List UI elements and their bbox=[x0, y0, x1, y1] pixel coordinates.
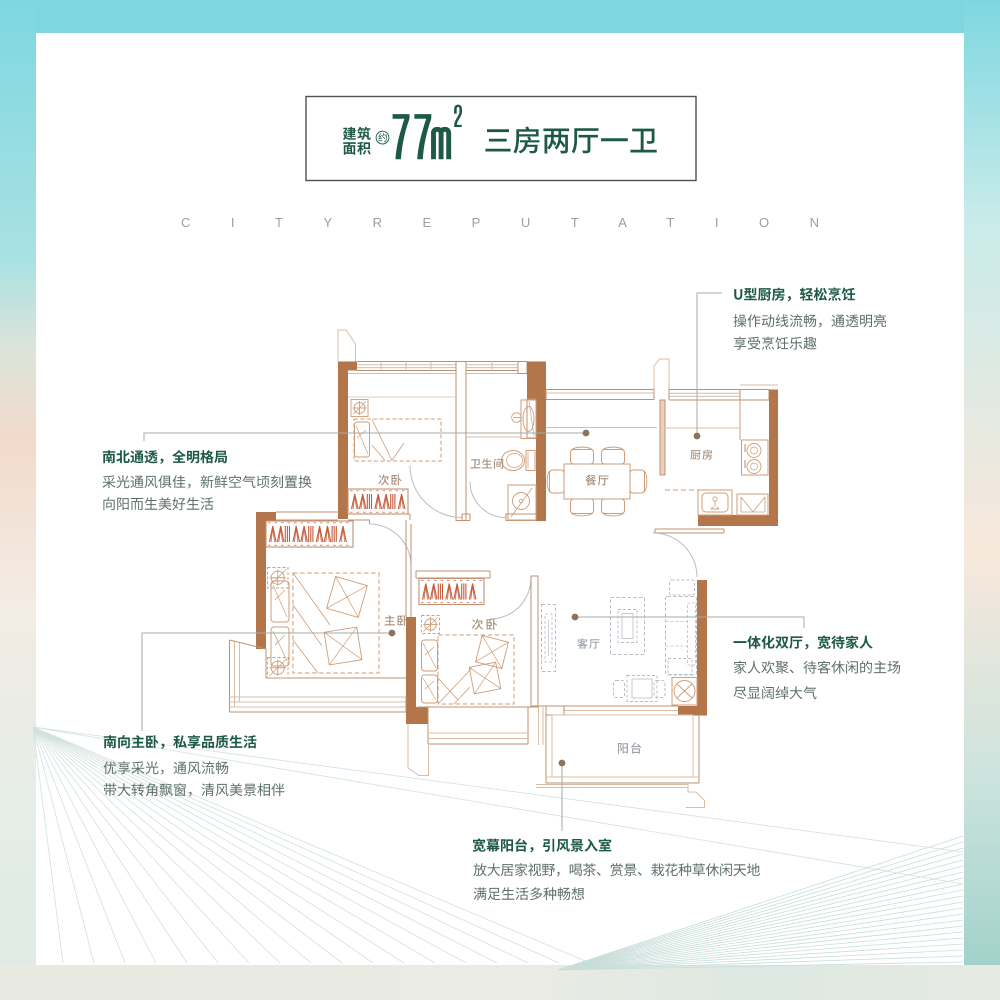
svg-text:CITYREPUTATION: CITYREPUTATION bbox=[181, 215, 859, 230]
